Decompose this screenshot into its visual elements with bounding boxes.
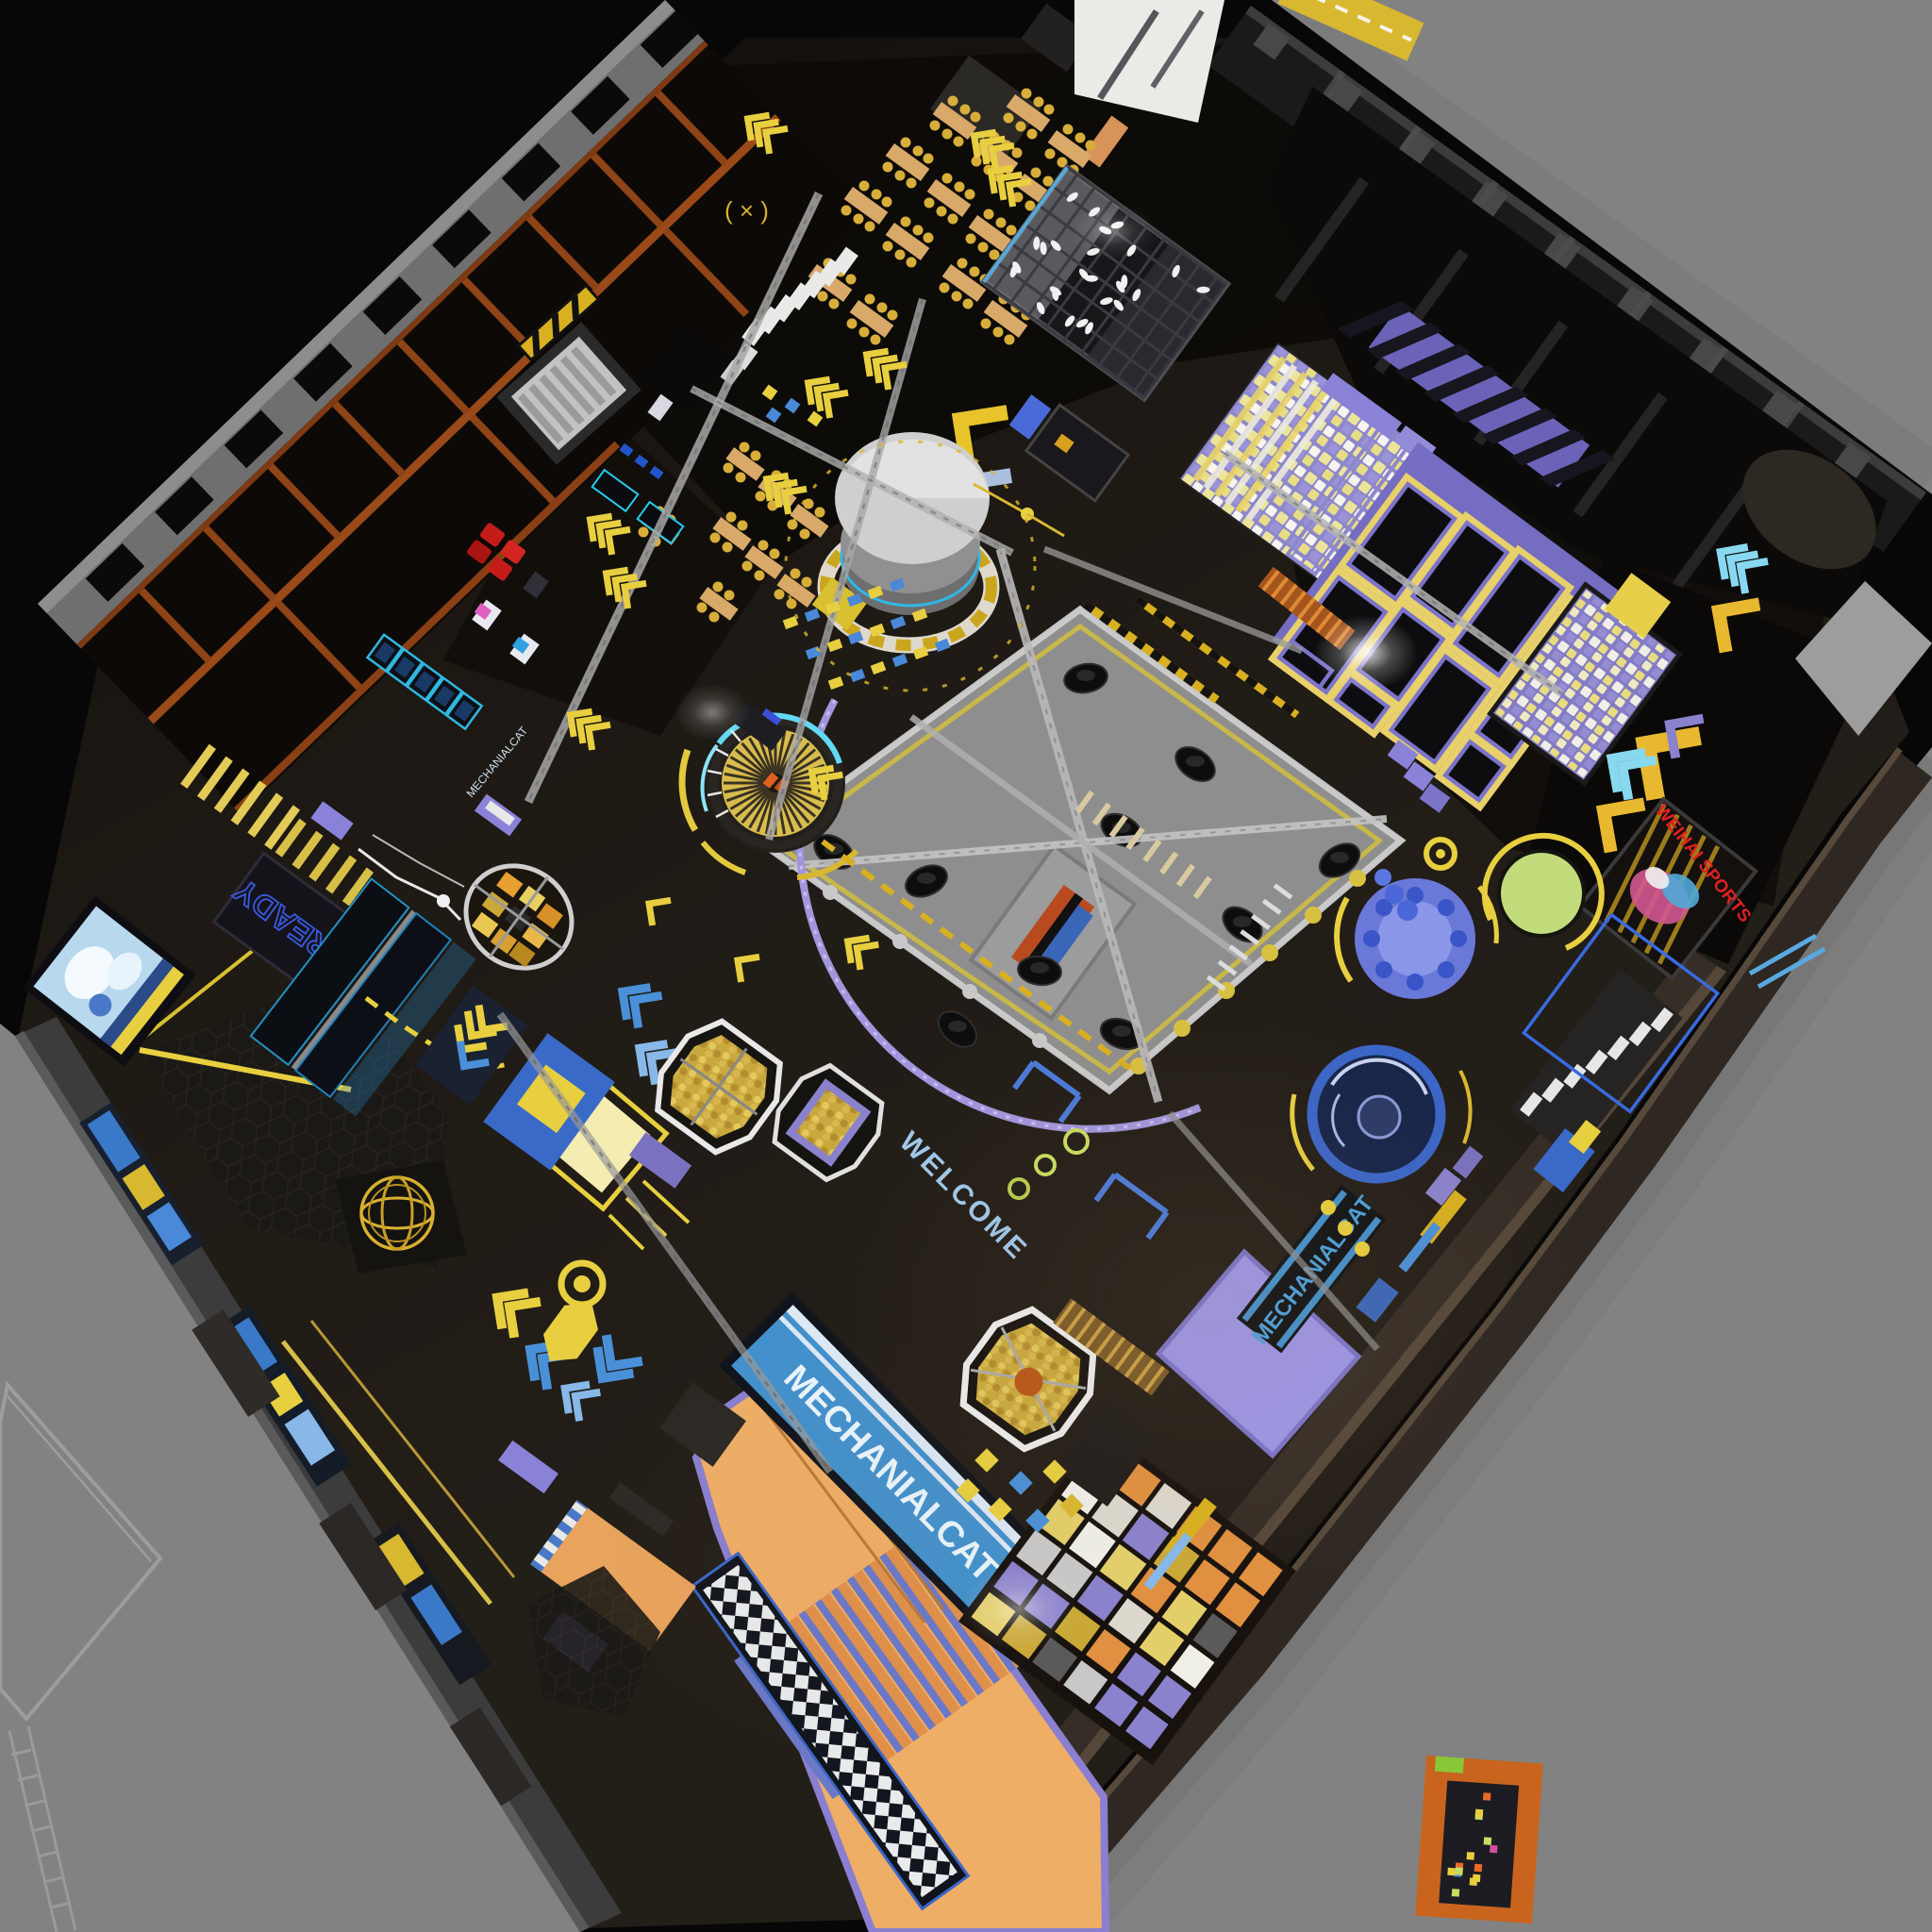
svg-text:( × ): ( × ) [724,196,769,225]
